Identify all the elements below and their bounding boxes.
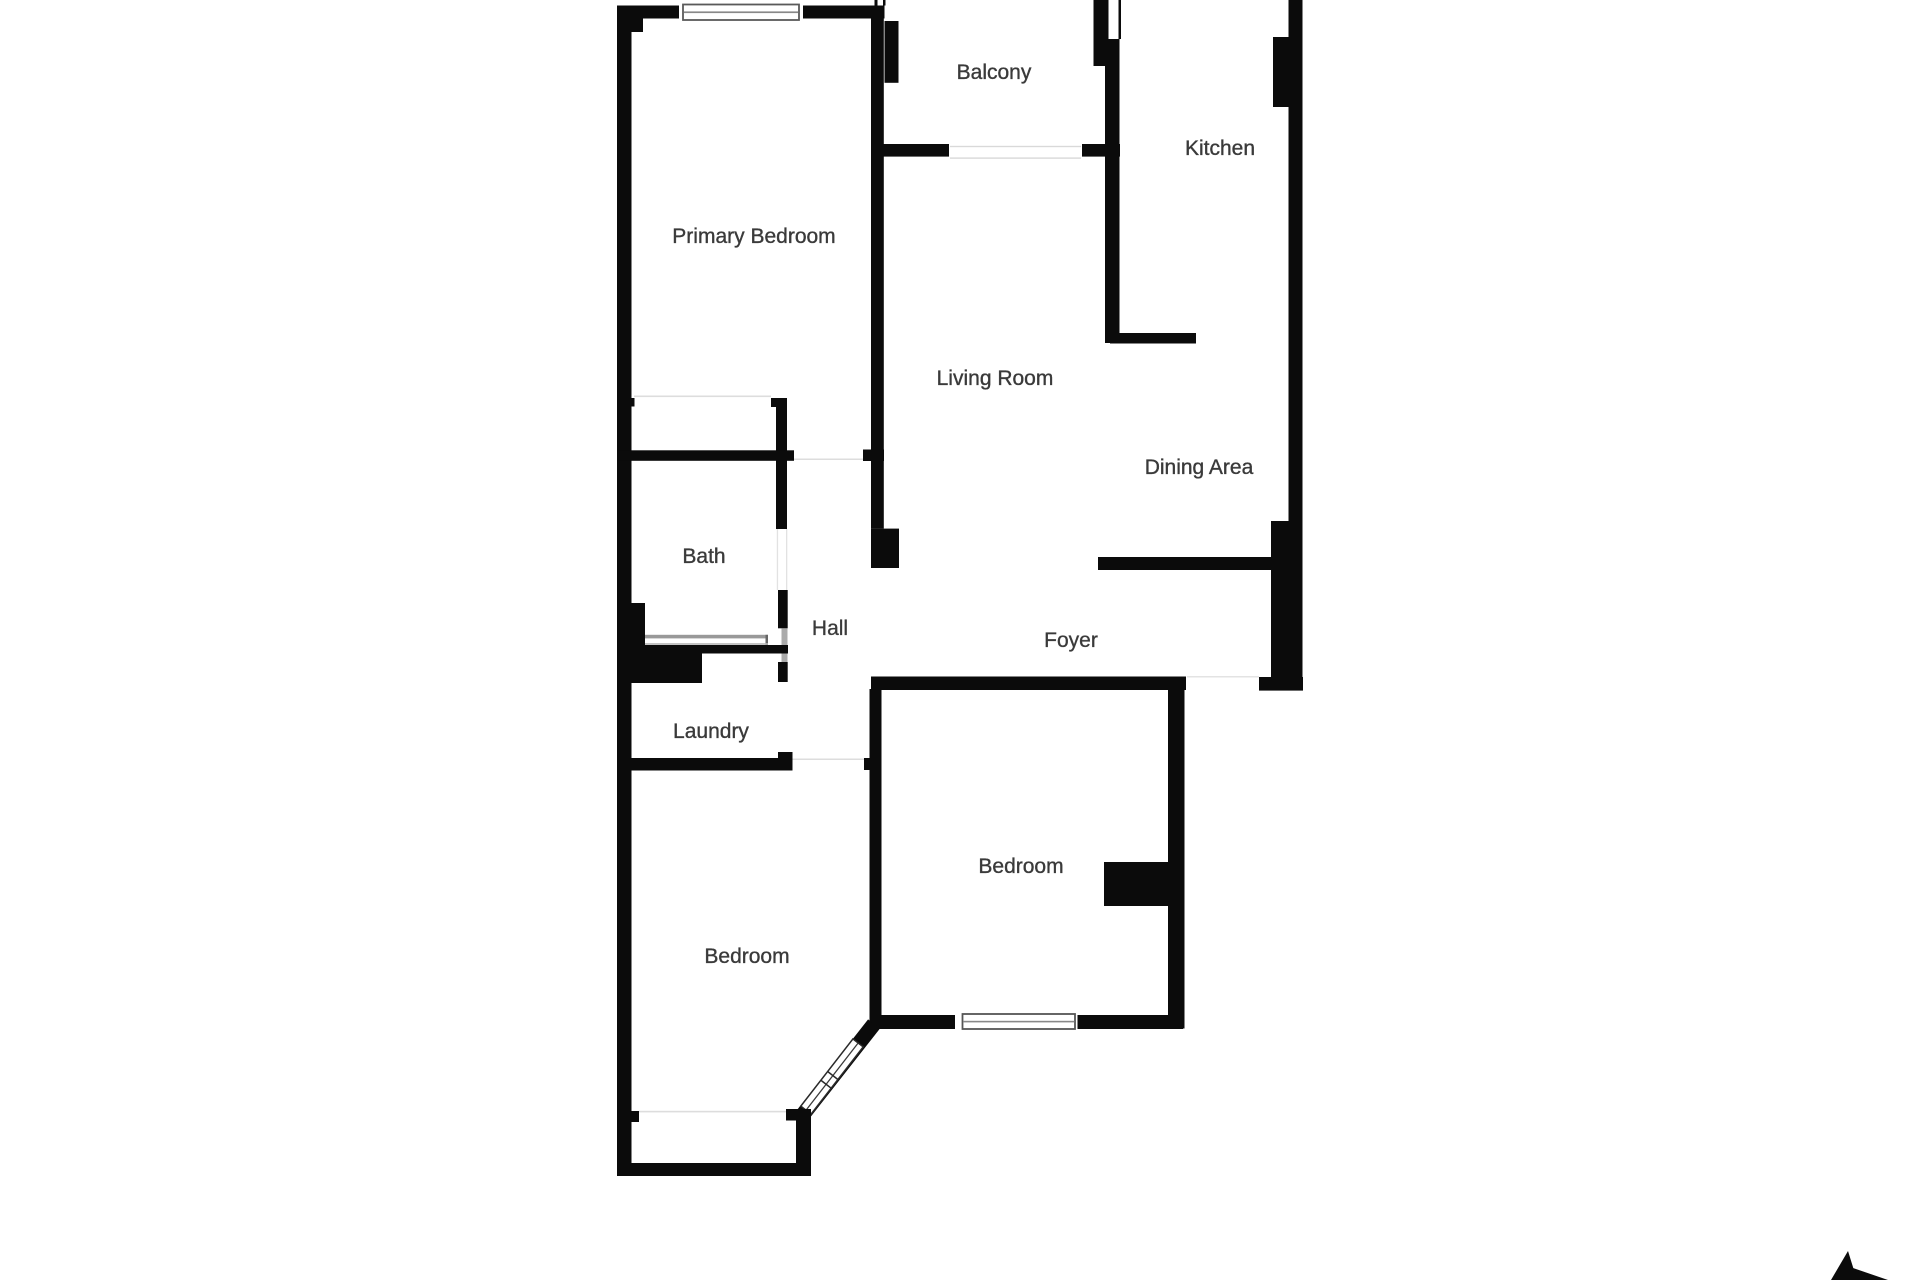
svg-text:Bath: Bath	[682, 545, 725, 568]
svg-text:Foyer: Foyer	[1044, 629, 1098, 652]
svg-text:Bedroom: Bedroom	[978, 855, 1063, 878]
svg-text:Laundry: Laundry	[673, 720, 749, 743]
svg-text:Living Room: Living Room	[937, 367, 1054, 390]
svg-text:Kitchen: Kitchen	[1185, 137, 1255, 160]
svg-text:Dining Area: Dining Area	[1145, 456, 1254, 479]
svg-text:Primary Bedroom: Primary Bedroom	[672, 225, 835, 248]
svg-text:Balcony: Balcony	[957, 61, 1032, 84]
svg-text:Bedroom: Bedroom	[704, 945, 789, 968]
svg-text:Hall: Hall	[812, 617, 848, 640]
